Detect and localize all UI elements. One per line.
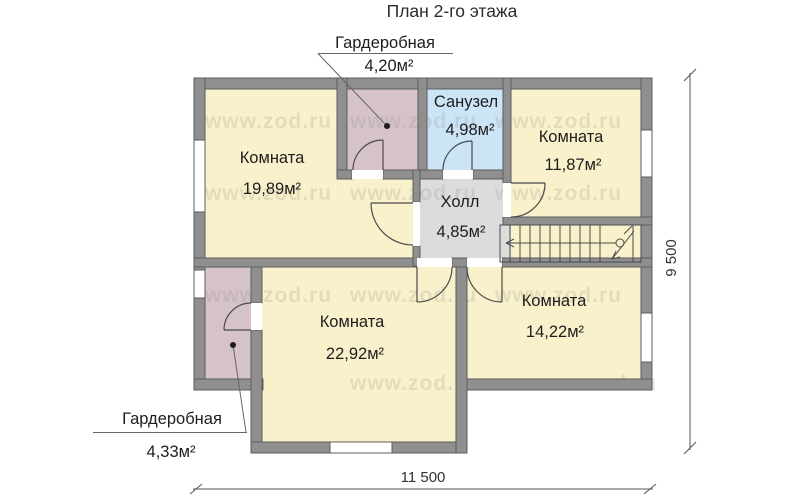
door-opening xyxy=(443,170,473,179)
wall-segment xyxy=(251,330,262,453)
wall-segment xyxy=(503,217,652,225)
hall-name: Холл xyxy=(441,193,480,211)
floor-plan-drawing: www.zod.ru www.zod.ru www.zod.ru www.zod… xyxy=(0,0,795,496)
door-opening xyxy=(417,258,452,267)
room-22-name: Комната xyxy=(320,313,385,331)
window xyxy=(330,442,392,453)
wall-segment xyxy=(456,267,467,453)
window xyxy=(194,270,205,298)
hall-area: 4,85м² xyxy=(437,223,486,241)
dimension-width-label: 11 500 xyxy=(401,469,446,486)
wall-segment xyxy=(452,258,467,267)
room-11-area: 11,87м² xyxy=(545,156,602,174)
room-11-name: Комната xyxy=(539,128,604,146)
wall-segment xyxy=(337,78,347,179)
wall-segment xyxy=(251,442,330,453)
watermark: www.zod.ru xyxy=(204,110,332,133)
wardrobe-bottom-area: 4,33м² xyxy=(147,443,196,461)
watermark: www.zod.ru xyxy=(204,284,332,307)
room-22-area: 22,92м² xyxy=(326,345,385,363)
room-14-name: Комната xyxy=(522,292,587,310)
room-14-area: 14,22м² xyxy=(526,323,585,341)
wall-segment xyxy=(194,78,205,390)
wall-segment xyxy=(337,170,352,179)
window xyxy=(194,140,205,212)
dimension-line-right xyxy=(684,69,696,454)
door-opening xyxy=(251,303,262,330)
dimension-height-label: 9 500 xyxy=(663,239,680,277)
page-title: План 2-го этажа xyxy=(387,1,518,21)
wardrobe-top-name: Гардеробная xyxy=(335,34,435,52)
door-opening xyxy=(352,170,383,179)
wall-segment xyxy=(251,267,262,303)
wall-segment xyxy=(194,258,417,267)
wall-segment xyxy=(503,78,511,183)
door-opening xyxy=(503,183,511,217)
wall-segment xyxy=(413,170,420,202)
window xyxy=(641,130,652,177)
room-19-area: 19,89м² xyxy=(243,180,302,198)
room-19-name: Комната xyxy=(240,149,305,167)
window xyxy=(641,313,652,362)
bathroom-name: Санузел xyxy=(434,93,498,111)
wall-segment xyxy=(456,379,652,390)
floor-plan-page: www.zod.ru www.zod.ru www.zod.ru www.zod… xyxy=(0,0,795,496)
leader-dot-top xyxy=(384,123,390,129)
door-opening xyxy=(467,258,502,267)
door-opening xyxy=(413,202,420,246)
wardrobe-bottom-name: Гардеробная xyxy=(122,410,222,428)
leader-dot-bottom xyxy=(230,342,236,348)
watermark: www.zod.ru xyxy=(494,182,622,205)
bathroom-area: 4,98м² xyxy=(446,121,495,139)
wall-segment xyxy=(418,78,427,179)
wardrobe-top-area: 4,20м² xyxy=(365,57,414,75)
